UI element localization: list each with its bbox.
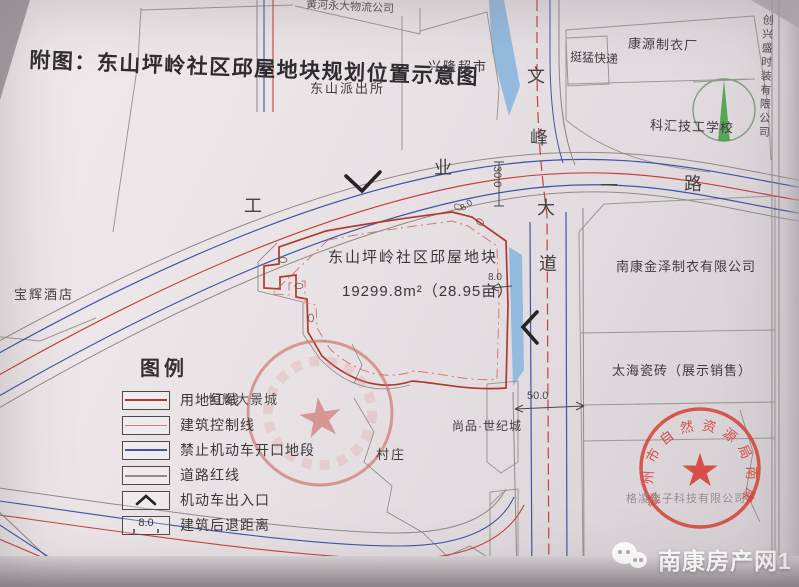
no-opening-swatch (122, 441, 170, 460)
watermark-text: 南康房产网1 (658, 542, 792, 576)
legend-item-setback: 8.0 建筑后退距离 (122, 516, 362, 534)
parcel-area: 19299.8m²（28.95亩） (342, 280, 513, 301)
setback-ticks (133, 529, 159, 533)
entrance-arrow-icon (123, 492, 169, 509)
wechat-icon (612, 542, 652, 576)
label-tech-school: 科汇技工学校 (650, 119, 734, 137)
legend-item-no-opening: 禁止机动车开口地段 (122, 441, 362, 459)
road-label-gongye-1: 工 (244, 192, 262, 218)
underlay-company-text: 格凌电子科技有限公司 (626, 490, 746, 506)
legend-title: 图例 (140, 352, 362, 381)
road-label-wenfeng-3: 大 (537, 194, 555, 220)
road-label-wenfeng-1: 文 (527, 62, 545, 88)
label-police-station: 东山派出所 (310, 82, 385, 97)
legend-item-vehicle-entrance: 机动车出入口 (122, 491, 362, 509)
legend-item-road-redline: 道路红线 (122, 466, 362, 484)
map-photo: ★ 赣州市自然资源局南康分局 ★ 附图：东山坪岭社区邱屋地块规划位置示意图 黄河… (0, 0, 799, 587)
watermark: 南康房产网1 (612, 542, 792, 576)
label-garment-factory: 康源制衣厂 (628, 37, 698, 54)
parcel-name: 东山坪岭社区邱屋地块 (328, 246, 498, 267)
label-taihai-tiles: 太海瓷砖（展示销售） (612, 364, 752, 379)
road-label-wenfeng-2: 峰 (530, 124, 548, 150)
road-label-gongye-2: 业 (434, 154, 452, 180)
road-wenfeng (513, 0, 584, 587)
label-supermarket: 兴隆超市 (428, 60, 488, 75)
road-label-wenfeng-4: 道 (539, 250, 557, 276)
road-line-swatch (122, 466, 170, 485)
svg-text:★: ★ (679, 444, 720, 496)
legend-item-land-redline: 用地红线 (122, 391, 362, 409)
dim-setback-east: 8.0 (488, 272, 502, 283)
setback-swatch: 8.0 (122, 516, 170, 535)
dim-road-width: 30.0 (491, 166, 503, 187)
road-label-gongye-4: 路 (684, 170, 702, 196)
label-express: 挺猛快递 (570, 51, 619, 67)
control-line-swatch (122, 416, 170, 435)
label-jinze-clothing: 南康金泽制衣有限公司 (616, 260, 756, 275)
label-hotel: 宝辉酒店 (14, 288, 74, 303)
label-shangpin: 尚品·世纪城 (452, 420, 522, 434)
legend: 图例 用地红线 建筑控制线 禁止机动车开口地段 道路红线 机动车出入口 (122, 352, 362, 541)
photo-edge-shadow (785, 0, 799, 587)
road-label-gongye-3: 一 (600, 172, 618, 198)
dim-south-road-width: 50.0 (527, 390, 548, 402)
legend-item-building-control: 建筑控制线 (122, 416, 362, 434)
label-village: 村庄 (376, 448, 406, 463)
entrance-arrow-swatch (122, 491, 170, 510)
redline-swatch (122, 391, 170, 410)
